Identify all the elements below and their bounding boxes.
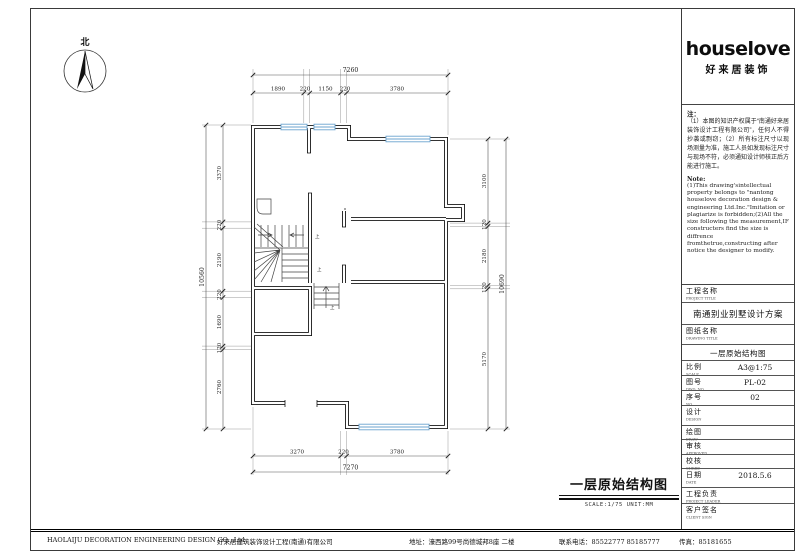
dimension-ticks: [204, 73, 508, 474]
windows: [281, 124, 430, 430]
dim-left-overall: 10560: [199, 267, 206, 287]
project-label: 工程名称: [686, 286, 720, 296]
no-label: 序号: [686, 392, 720, 402]
dim-top-overall: 7260: [343, 67, 359, 74]
client-label: 客户签名: [686, 505, 720, 515]
dim-right-overall: 10690: [499, 274, 506, 294]
stair-up-label: 上: [317, 266, 322, 273]
walls: [253, 127, 463, 427]
notes-section: 注： （1）本图的知识产权属于“南通好来居装饰设计工程有限公司”，任何人不得抄袭…: [682, 105, 794, 285]
plan-caption: 一层原始结构图 SCALE:1/75 UNIT:MM: [559, 474, 679, 508]
dwg-label: 图号: [686, 377, 720, 387]
window: [359, 424, 429, 430]
row-leader: 工程负责 PROJECT LEADER: [682, 488, 794, 504]
row-design: 设计 DESIGN: [682, 406, 794, 426]
dim-label: 3780: [390, 450, 405, 456]
row-project-label: 工程名称 PROJECT TITLE: [682, 285, 794, 303]
drawing-label-en: DRAWING TITLE: [686, 336, 718, 341]
date-value: 2018.5.6: [720, 470, 790, 480]
drawing-sheet: 北 7260 1890: [30, 8, 795, 551]
row-scale: 比例 SCALE A3@1:75: [682, 361, 794, 376]
plan-area: 北 7260 1890: [31, 9, 683, 534]
dim-label: 3780: [390, 87, 405, 93]
leader-label-en: PROJECT LEADER: [686, 499, 720, 504]
dim-bottom-overall: 7270: [343, 465, 359, 472]
dwg-value: PL-02: [720, 377, 790, 387]
plan-scale-unit: SCALE:1/75 UNIT:MM: [559, 502, 679, 508]
check-label-en: CHKED: [686, 466, 717, 471]
row-date: 日期 DATE 2018.5.6: [682, 469, 794, 488]
dim-label: 1690: [217, 314, 223, 329]
extension-lines: [202, 69, 510, 475]
check-label: 校核: [686, 456, 720, 466]
footer-fax: 传真：85181655: [679, 536, 732, 546]
footer-company-en: HAOLAIJU DECORATION ENGINEERING DESIGN C…: [47, 536, 245, 544]
stair-up-label: 上: [315, 233, 320, 240]
leader-label: 工程负责: [686, 489, 724, 499]
note-en-title: Note:: [687, 176, 789, 183]
footer-bar: HAOLAIJU DECORATION ENGINEERING DESIGN C…: [31, 529, 794, 550]
floor-plan-svg: 北 7260 1890: [31, 9, 683, 534]
draw-label: 绘图: [686, 427, 720, 437]
north-arrow-icon: 北: [64, 36, 106, 92]
dim-label: 120: [217, 342, 223, 353]
scale-label: 比例: [686, 362, 720, 372]
row-client: 客户签名 CLIENT SIGN: [682, 504, 794, 522]
dim-label: 2190: [217, 252, 223, 267]
dim-label: 220: [338, 450, 349, 456]
footer-phone: 联系电话：85522777 85185777: [559, 536, 660, 546]
logo: houselove 好来居装饰: [682, 9, 794, 105]
approve-label-en: APPROVED: [686, 451, 717, 456]
logo-brand: houselove: [686, 38, 791, 60]
project-label-en: PROJECT TITLE: [686, 296, 717, 301]
no-label-en: NO.: [686, 402, 717, 407]
north-label: 北: [80, 36, 89, 48]
note-en-body: (1)This drawing'sintellectual property b…: [687, 183, 789, 255]
row-dwg-no: 图号 DWG. NO PL-02: [682, 376, 794, 391]
door-opening: [285, 400, 317, 407]
dimension-labels: 7260 1890 220 1150 220 3780 3270 220 378…: [199, 67, 506, 472]
dim-label: 1150: [318, 87, 333, 93]
design-label: 设计: [686, 407, 720, 417]
note-cn-title: 注：: [687, 108, 789, 118]
approve-label: 审核: [686, 441, 720, 451]
footer-address: 地址：濠西路99号尚德城邦8座 二楼: [409, 536, 514, 546]
design-label-en: DESIGN: [686, 417, 717, 422]
drawing-label: 图纸名称: [686, 326, 721, 336]
row-drawing-label: 图纸名称 DRAWING TITLE: [682, 325, 794, 345]
date-label: 日期: [686, 470, 720, 480]
dim-label: 5170: [482, 351, 488, 366]
no-value: 02: [720, 392, 790, 402]
dim-label: 220: [217, 219, 223, 230]
dim-label: 3270: [290, 450, 305, 456]
row-check: 校核 CHKED: [682, 455, 794, 469]
window: [281, 124, 307, 130]
dim-label: 3100: [482, 173, 488, 188]
row-draw: 绘图 DRAW: [682, 426, 794, 440]
staircase: [254, 199, 339, 309]
dim-label: 220: [217, 289, 223, 300]
title-block: houselove 好来居装饰 注： （1）本图的知识产权属于“南通好来居装饰设…: [681, 9, 794, 534]
draw-label-en: DRAW: [686, 437, 717, 442]
row-approve: 审核 APPROVED: [682, 440, 794, 455]
date-label-en: DATE: [686, 480, 717, 485]
footer-company-cn: 好来居建筑装饰设计工程(南通)有限公司: [217, 536, 333, 546]
plan-title: 一层原始结构图: [559, 474, 679, 496]
row-drawing-value: 一层原始结构图: [682, 345, 794, 361]
dim-label: 120: [482, 219, 488, 230]
dim-label: 2760: [217, 379, 223, 394]
window: [386, 136, 430, 142]
dim-label: 220: [300, 87, 311, 93]
drawing-value: 一层原始结构图: [710, 348, 766, 359]
dwg-label-en: DWG. NO: [686, 387, 717, 392]
row-no: 序号 NO. 02: [682, 391, 794, 406]
note-cn-body: （1）本图的知识产权属于“南通好来居装饰设计工程有限公司”，任何人不得抄袭或剽窃…: [687, 118, 789, 172]
client-label-en: CLIENT SIGN: [686, 515, 717, 520]
logo-sub: 好来居装饰: [706, 61, 771, 76]
window: [314, 124, 335, 130]
dim-label: 220: [340, 87, 351, 93]
dim-label: 1890: [271, 87, 286, 93]
scale-value: A3@1:75: [720, 362, 790, 372]
dim-label: 3370: [217, 165, 223, 180]
dim-label: 120: [482, 282, 488, 293]
project-value: 南通别业别墅设计方案: [693, 308, 783, 320]
plan-title-rule: [559, 498, 679, 500]
row-project-value: 南通别业别墅设计方案: [682, 303, 794, 325]
dim-label: 2180: [482, 248, 488, 263]
stair-up-label: 上: [330, 304, 335, 311]
scale-label-en: SCALE: [686, 372, 717, 377]
